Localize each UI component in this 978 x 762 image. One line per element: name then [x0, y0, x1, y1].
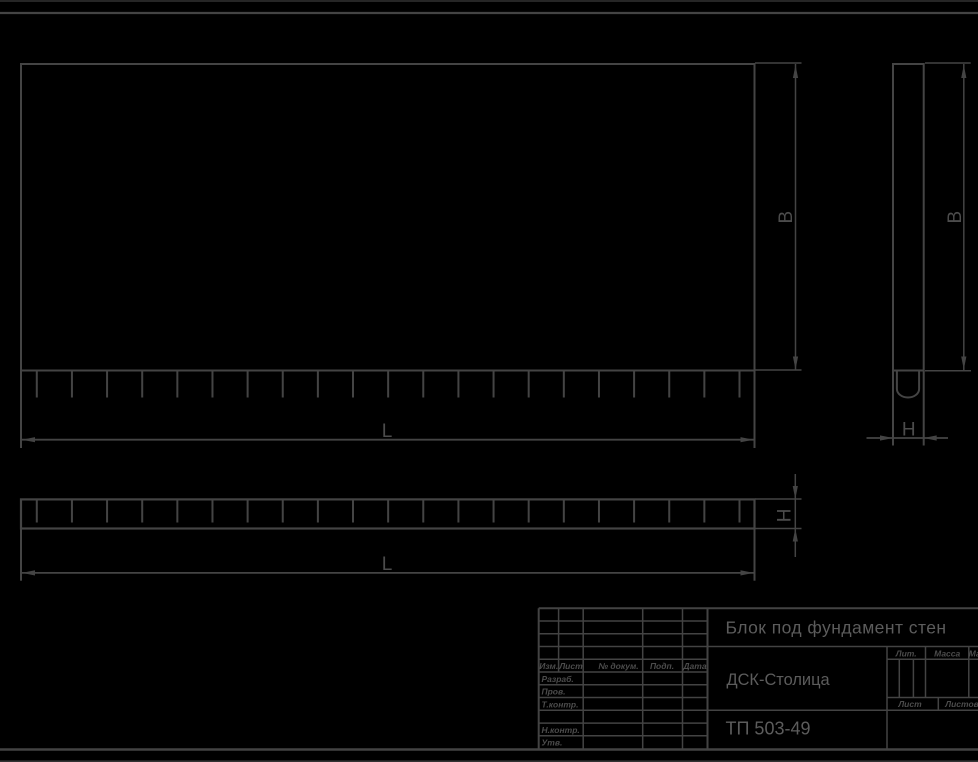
svg-text:Лист: Лист	[897, 699, 922, 709]
svg-text:Лит.: Лит.	[895, 649, 917, 659]
svg-text:Масса: Масса	[934, 649, 960, 659]
svg-text:Пров.: Пров.	[542, 687, 566, 697]
svg-text:Утв.: Утв.	[542, 738, 563, 748]
svg-text:Изм.: Изм.	[539, 661, 558, 671]
svg-text:Подп.: Подп.	[650, 661, 674, 671]
svg-text:Н.контр.: Н.контр.	[542, 725, 580, 735]
svg-text:L: L	[382, 421, 393, 442]
svg-text:ДСК-Столица: ДСК-Столица	[727, 671, 831, 689]
svg-text:Блок под фундамент стен: Блок под фундамент стен	[726, 618, 947, 638]
svg-text:B: B	[945, 211, 966, 224]
svg-text:Т.контр.: Т.контр.	[542, 699, 579, 709]
svg-text:B: B	[776, 211, 797, 224]
svg-text:Масштаб: Масштаб	[969, 649, 978, 659]
svg-text:№ докум.: № докум.	[598, 661, 638, 671]
svg-text:Дата: Дата	[682, 661, 706, 671]
svg-text:H: H	[775, 509, 796, 523]
svg-text:Лист: Лист	[558, 661, 583, 671]
svg-text:ТП 503-49: ТП 503-49	[726, 719, 811, 739]
svg-text:Листов: Листов	[944, 699, 978, 709]
svg-text:H: H	[902, 420, 916, 441]
svg-text:Разраб.: Разраб.	[542, 674, 574, 684]
svg-text:L: L	[382, 554, 393, 575]
